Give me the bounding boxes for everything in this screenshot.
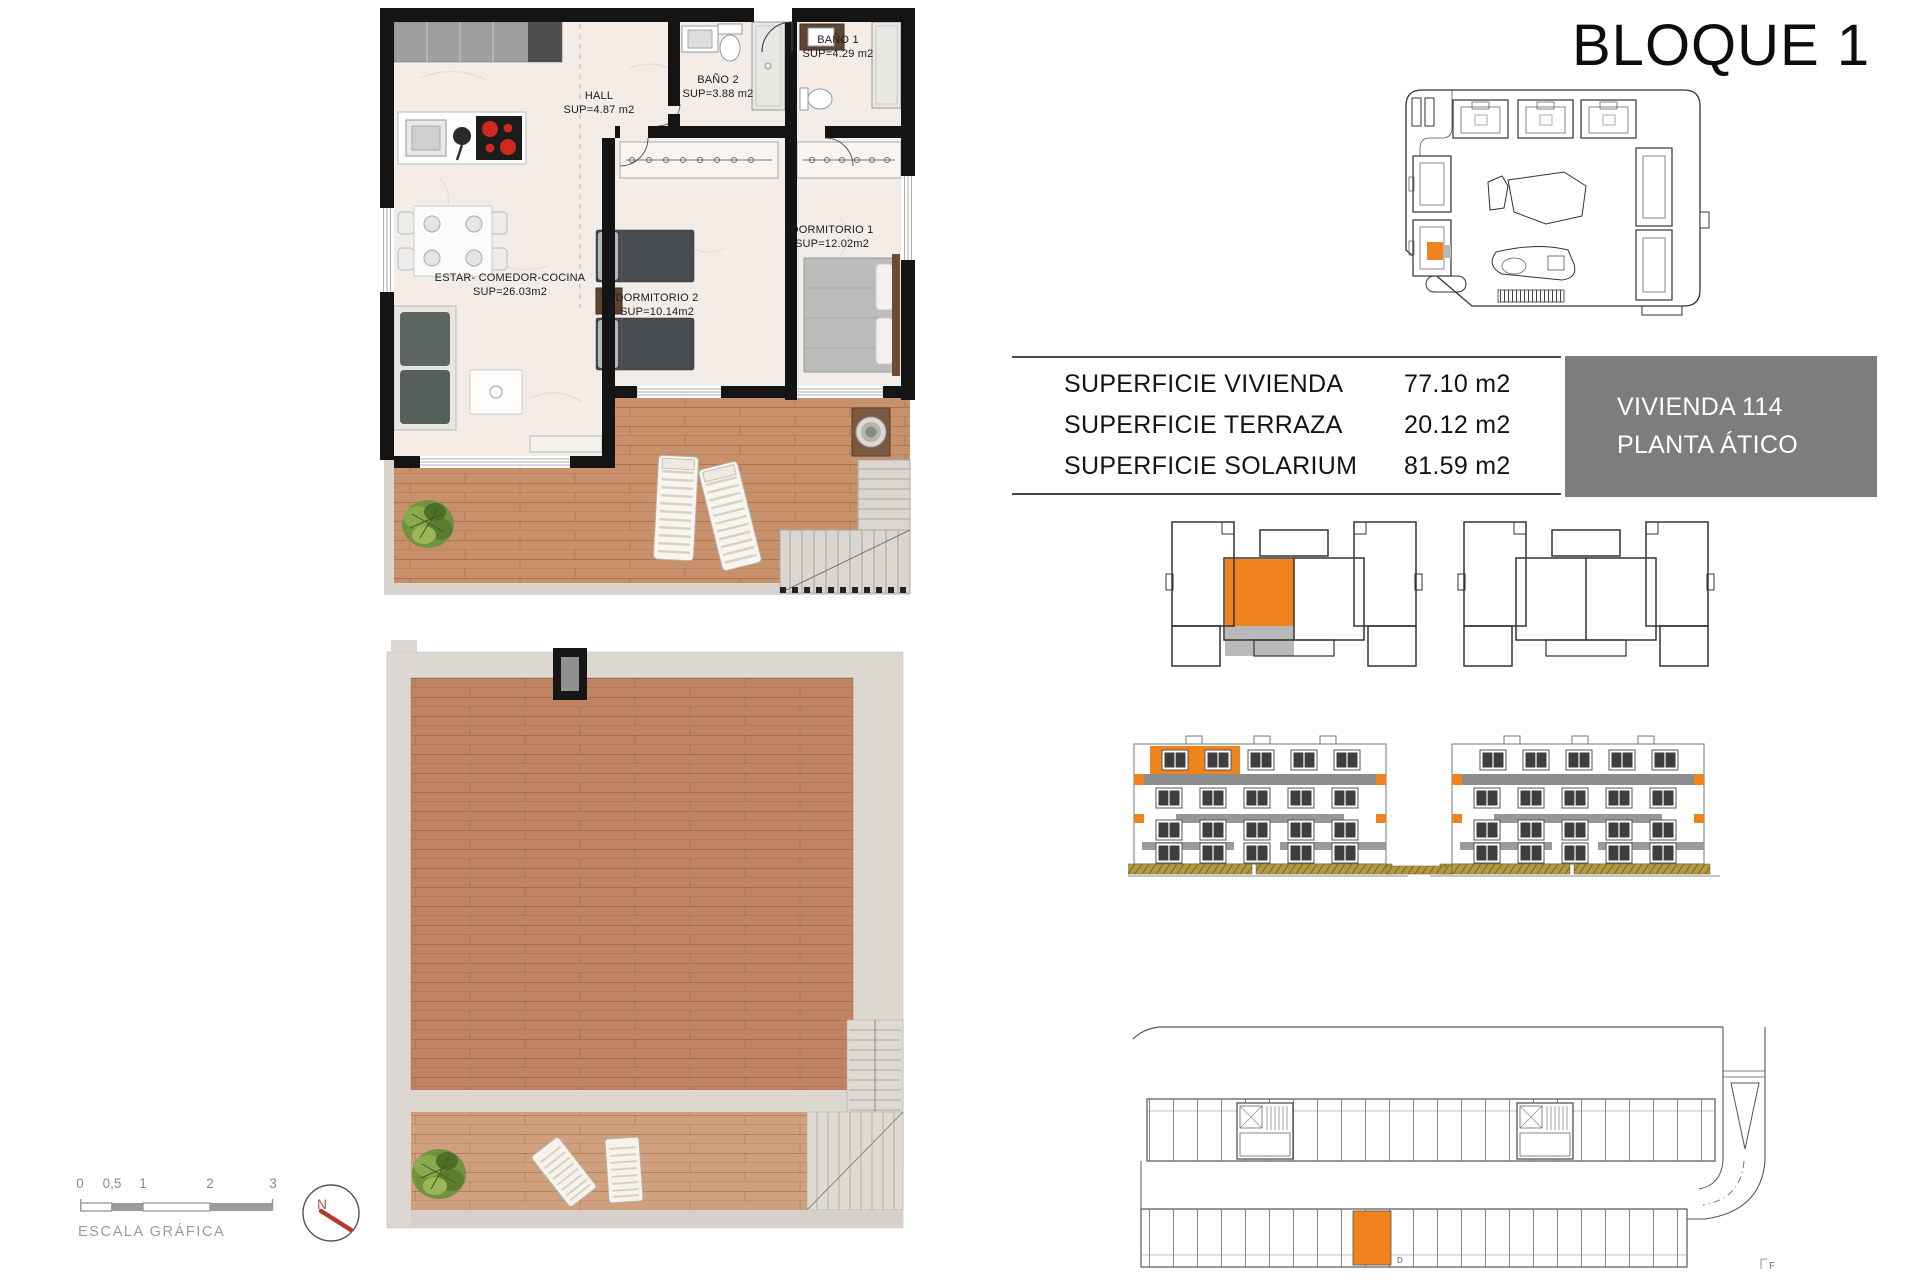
- apartment-plan: HALLSUP=4.87 m2 BAÑO 2SUP=3.88 m2 BAÑO 1…: [380, 8, 915, 603]
- highlighted-parking-space: [1353, 1211, 1391, 1265]
- unit-badge-line2: PLANTA ÁTICO: [1617, 431, 1877, 460]
- surface-value: 20.12 m2: [1404, 411, 1511, 440]
- sofa: [394, 306, 456, 430]
- unit-badge-line1: VIVIENDA 114: [1617, 393, 1877, 422]
- compass-needle: [321, 1211, 351, 1230]
- headboard: [892, 254, 900, 376]
- scale-bar: 0 0,5 1 2 3 ESCALA GRÁFICA: [70, 1176, 320, 1248]
- plan-sheet: HALLSUP=4.87 m2 BAÑO 2SUP=3.88 m2 BAÑO 1…: [0, 0, 1920, 1280]
- table-row: SUPERFICIE TERRAZA 20.12 m2: [1012, 411, 1561, 440]
- table-row: SUPERFICIE VIVIENDA 77.10 m2: [1012, 370, 1561, 399]
- stair-core-2: [1517, 1103, 1573, 1159]
- unit-badge: VIVIENDA 114 PLANTA ÁTICO: [1565, 356, 1877, 497]
- stove: [476, 116, 522, 160]
- room-label-bano1: BAÑO 1SUP=4.29 m2: [803, 34, 874, 61]
- bed-double: [804, 254, 900, 376]
- scale-bar-graphic: [80, 1196, 280, 1216]
- key-plan-highlighted: [1166, 522, 1422, 666]
- parking-space-label: D: [1397, 1256, 1403, 1265]
- north-compass: N: [300, 1182, 362, 1244]
- surface-label: SUPERFICIE TERRAZA: [1064, 411, 1404, 440]
- room-label-bano2: BAÑO 2SUP=3.88 m2: [683, 74, 754, 101]
- wardrobe-dorm2: [620, 142, 778, 178]
- highlighted-unit-site: [1427, 242, 1443, 260]
- table-row: SUPERFICIE SOLARIUM 81.59 m2: [1012, 452, 1561, 481]
- plant-2: [412, 1149, 466, 1199]
- corner-mark: F: [1769, 1261, 1775, 1272]
- scale-bar-label: ESCALA GRÁFICA: [78, 1224, 225, 1240]
- parking-row-bottom: [1141, 1209, 1687, 1267]
- tv-bench: [530, 436, 602, 452]
- fridge: [528, 22, 562, 62]
- room-label-estar: ESTAR- COMEDOR-COCINASUP=26.03m2: [435, 272, 586, 299]
- sheet-title: BLOQUE 1: [1572, 12, 1870, 79]
- scale-tick: 0: [76, 1176, 84, 1191]
- garage-plan-svg: D F: [1125, 1013, 1785, 1277]
- surface-value: 77.10 m2: [1404, 370, 1511, 399]
- surface-table: SUPERFICIE VIVIENDA 77.10 m2 SUPERFICIE …: [1012, 356, 1561, 495]
- room-label-dormitorio2: DORMITORIO 2SUP=10.14m2: [616, 292, 699, 319]
- sun-lounger-4: [605, 1137, 643, 1203]
- key-plan-plain: [1458, 522, 1714, 666]
- scale-tick: 0,5: [103, 1176, 122, 1191]
- surface-label: SUPERFICIE VIVIENDA: [1064, 370, 1404, 399]
- key-plans-svg: [1158, 510, 1722, 674]
- scale-tick: 2: [206, 1176, 214, 1191]
- room-label-hall: HALLSUP=4.87 m2: [564, 90, 635, 117]
- dining-table: [398, 206, 507, 276]
- elevations-svg: [1128, 724, 1720, 896]
- scale-tick: 1: [139, 1176, 147, 1191]
- chimney: [553, 648, 587, 700]
- elevation-plain: [1430, 736, 1720, 876]
- elevation-highlighted: [1128, 736, 1408, 876]
- wardrobe-dorm1: [797, 142, 901, 178]
- parking-row-top: [1147, 1099, 1715, 1161]
- plant: [402, 500, 454, 548]
- site-plan-svg: [1396, 84, 1730, 332]
- surface-value: 81.59 m2: [1404, 452, 1511, 481]
- scale-tick: 3: [269, 1176, 277, 1191]
- surface-label: SUPERFICIE SOLARIUM: [1064, 452, 1404, 481]
- coffee-table: [470, 370, 522, 414]
- stair-core-1: [1237, 1103, 1293, 1159]
- site-edge-line: [1133, 1027, 1723, 1039]
- bbq-grill: [852, 408, 890, 456]
- frying-pan: [453, 127, 471, 145]
- solarium-plan-svg: [385, 640, 915, 1240]
- sun-lounger-1: [653, 455, 698, 561]
- room-label-dormitorio1: DORMITORIO 1SUP=12.02m2: [791, 224, 874, 251]
